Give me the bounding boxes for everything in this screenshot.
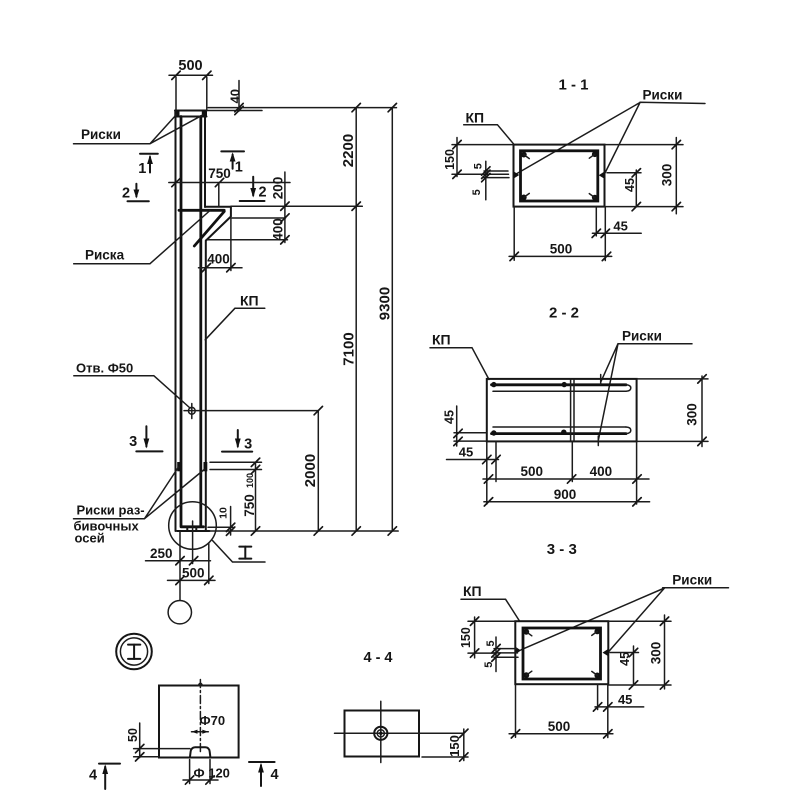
svg-text:10: 10 <box>217 507 229 519</box>
svg-text:Риски: Риски <box>622 329 662 344</box>
svg-text:4: 4 <box>270 767 278 783</box>
svg-text:300: 300 <box>660 164 675 187</box>
svg-text:400: 400 <box>271 218 286 241</box>
svg-text:Риски: Риски <box>672 573 712 588</box>
svg-text:4: 4 <box>89 768 97 784</box>
svg-text:45: 45 <box>459 445 473 460</box>
svg-text:45: 45 <box>613 219 627 234</box>
svg-text:150: 150 <box>443 149 457 170</box>
svg-text:осей: осей <box>75 531 105 546</box>
svg-text:150: 150 <box>447 735 462 757</box>
svg-text:750: 750 <box>208 166 231 181</box>
svg-text:45: 45 <box>623 178 637 192</box>
svg-text:Ф 120: Ф 120 <box>194 766 230 781</box>
svg-text:45: 45 <box>618 692 632 707</box>
svg-text:400: 400 <box>590 464 613 479</box>
svg-text:500: 500 <box>548 719 571 734</box>
svg-text:Ф70: Ф70 <box>200 713 226 728</box>
svg-text:2000: 2000 <box>302 454 319 487</box>
svg-text:Риска: Риска <box>85 248 125 263</box>
svg-text:200: 200 <box>271 177 286 200</box>
svg-text:40: 40 <box>227 89 242 103</box>
svg-text:750: 750 <box>242 494 257 517</box>
svg-text:7100: 7100 <box>340 332 357 365</box>
svg-text:КП: КП <box>240 293 259 309</box>
svg-text:300: 300 <box>685 403 700 426</box>
svg-text:3: 3 <box>129 434 137 450</box>
svg-text:Риски: Риски <box>643 88 683 103</box>
svg-text:1: 1 <box>138 161 146 177</box>
svg-text:Отв. Ф50: Отв. Ф50 <box>76 361 133 376</box>
svg-text:500: 500 <box>550 242 573 257</box>
svg-text:500: 500 <box>521 464 544 479</box>
svg-text:500: 500 <box>178 58 202 74</box>
svg-text:5: 5 <box>485 640 497 646</box>
svg-text:Риски раз-: Риски раз- <box>77 503 145 518</box>
svg-text:1: 1 <box>235 160 243 176</box>
svg-text:4 - 4: 4 - 4 <box>363 650 392 666</box>
svg-text:КП: КП <box>466 110 485 126</box>
svg-text:1 - 1: 1 - 1 <box>558 77 588 94</box>
svg-text:2: 2 <box>122 186 130 202</box>
svg-text:КП: КП <box>463 583 482 599</box>
svg-text:45: 45 <box>618 652 632 666</box>
svg-text:2 - 2: 2 - 2 <box>549 305 579 322</box>
svg-text:2: 2 <box>258 185 266 201</box>
svg-text:100: 100 <box>245 473 255 488</box>
svg-text:150: 150 <box>459 627 473 648</box>
svg-text:900: 900 <box>554 487 577 502</box>
svg-text:3: 3 <box>244 437 252 453</box>
svg-text:50: 50 <box>126 728 140 742</box>
svg-text:400: 400 <box>207 252 230 267</box>
svg-text:5: 5 <box>471 189 483 195</box>
svg-text:5: 5 <box>483 662 495 668</box>
svg-text:5: 5 <box>473 163 485 169</box>
svg-text:КП: КП <box>432 332 451 348</box>
svg-text:9300: 9300 <box>376 287 393 320</box>
svg-text:3 - 3: 3 - 3 <box>547 541 577 558</box>
svg-text:500: 500 <box>182 566 205 581</box>
svg-text:Риски: Риски <box>81 127 121 142</box>
svg-text:2200: 2200 <box>340 134 357 167</box>
svg-text:45: 45 <box>442 410 456 424</box>
svg-text:300: 300 <box>649 642 664 665</box>
svg-text:250: 250 <box>150 546 173 561</box>
